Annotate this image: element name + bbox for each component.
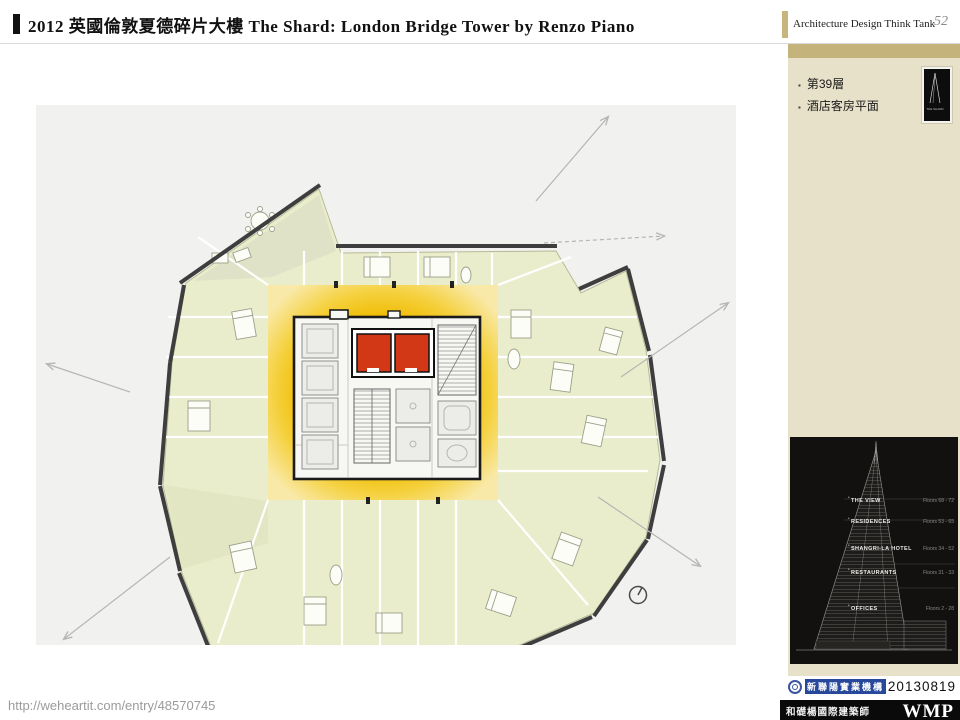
architect-mark: WMP <box>902 701 954 720</box>
page-title: 2012 英國倫敦夏德碎片大樓 The Shard: London Bridge… <box>28 12 758 37</box>
tower-section-floors: Floors 34 - 52 <box>923 546 954 552</box>
tower-section-floors: Floors 2 - 28 <box>926 606 954 612</box>
section-marker-icon: * <box>848 603 850 608</box>
bullet-list: ▪ 第39層 ▪ 酒店客房平面 <box>798 74 879 118</box>
tower-section-row: *OFFICES Floors 2 - 28 <box>848 603 954 612</box>
page-number: 52 <box>934 14 948 30</box>
shard-logo: THE SHARD <box>922 67 952 123</box>
tower-section-row: *THE VIEW Floors 68 - 72 <box>848 495 954 504</box>
tower-section-label: *THE VIEW <box>848 495 881 504</box>
bullet-text: 第39層 <box>807 74 844 94</box>
section-marker-icon: * <box>848 516 850 521</box>
bullet-item: ▪ 酒店客房平面 <box>798 96 879 118</box>
section-marker-icon: * <box>848 543 850 548</box>
elevator-highlight <box>352 329 434 377</box>
presentation-slide: 2012 英國倫敦夏德碎片大樓 The Shard: London Bridge… <box>0 0 960 720</box>
bullet-item: ▪ 第39層 <box>798 74 879 96</box>
brand-accent-bar <box>782 11 788 38</box>
section-marker-icon: * <box>848 495 850 500</box>
floor-plan-panel <box>36 105 736 645</box>
title-accent-bar <box>13 14 20 34</box>
tower-section-row: *SHANGRI-LA HOTEL Floors 34 - 52 <box>848 543 954 552</box>
shard-logo-caption: THE SHARD <box>926 107 944 111</box>
developer-emblem-icon <box>788 680 802 694</box>
brand-text: Architecture Design Think Tank <box>793 18 935 30</box>
service-core <box>294 310 480 479</box>
tower-section-row: *RESTAURANTS Floors 31 - 33 <box>848 567 954 576</box>
tower-section-row: *RESIDENCES Floors 53 - 65 <box>848 516 954 525</box>
sidebar: ▪ 第39層 ▪ 酒店客房平面 THE SHARD <box>788 58 960 676</box>
source-url[interactable]: http://weheartit.com/entry/48570745 <box>8 698 215 713</box>
tower-section-floors: Floors 31 - 33 <box>923 570 954 576</box>
tower-section-label: *OFFICES <box>848 603 878 612</box>
tower-section-diagram: *THE VIEW Floors 68 - 72 *RESIDENCES Flo… <box>790 437 958 664</box>
date-stamp: 20130819 <box>860 679 956 694</box>
sidebar-accent-bar <box>788 44 960 58</box>
tower-section-label: *RESTAURANTS <box>848 567 897 576</box>
tower-section-floors: Floors 68 - 72 <box>923 498 954 504</box>
floor-plan-image <box>36 105 736 645</box>
tower-section-floors: Floors 53 - 65 <box>923 519 954 525</box>
architect-name: 和礎楊國際建築師 <box>786 704 870 718</box>
shard-spire-icon: THE SHARD <box>924 69 946 117</box>
section-marker-icon: * <box>848 567 850 572</box>
north-indicator-icon <box>630 587 647 604</box>
architect-bar: 和礎楊國際建築師 WMP <box>780 700 960 720</box>
bullet-text: 酒店客房平面 <box>807 96 879 116</box>
tower-section-label: *SHANGRI-LA HOTEL <box>848 543 912 552</box>
bullet-icon: ▪ <box>798 76 801 96</box>
tower-section-label: *RESIDENCES <box>848 516 891 525</box>
bullet-icon: ▪ <box>798 98 801 118</box>
